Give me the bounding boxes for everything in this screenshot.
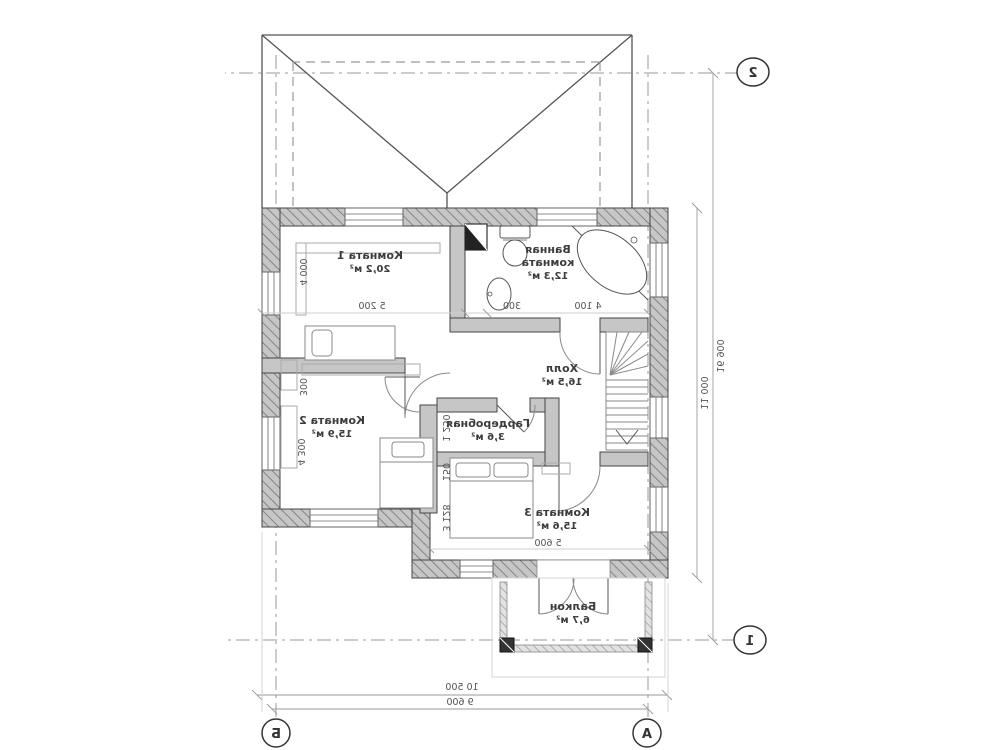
wall-hall-top-right — [450, 318, 560, 332]
room3-area: 15,6 м² — [537, 521, 578, 532]
dim-top-bath: 4 100 — [574, 301, 601, 312]
window-room3-side — [650, 487, 668, 532]
wall-wardrobe-top-right — [437, 398, 497, 412]
window-room2-side — [262, 417, 280, 470]
axis-label-1: 1 — [745, 634, 754, 649]
window-top-room1 — [345, 208, 403, 226]
room2-bed — [380, 438, 433, 508]
dim-left-room2: 4 300 — [295, 438, 306, 465]
floor-plan-drawing: Комната 1 20,2 м² Ванная комната 12,3 м²… — [0, 0, 1000, 750]
room1-label: Комната 1 — [337, 249, 403, 262]
wardrobe-area: 3,6 м² — [471, 432, 505, 443]
balcony-wall-bottom — [500, 645, 652, 652]
axis-label-a: А — [642, 727, 652, 742]
axis-label-b: Б — [271, 727, 281, 742]
floor-plan-sheet: Комната 1 20,2 м² Ванная комната 12,3 м²… — [0, 0, 1000, 750]
axis-label-2: 2 — [748, 66, 757, 81]
dim-mid-gap: 150 — [440, 463, 451, 481]
wall-wardrobe-left — [545, 398, 559, 466]
door-room2 — [385, 377, 420, 412]
dim-right-depth: 11 000 — [698, 376, 709, 409]
roof-outline — [262, 35, 632, 208]
bathroom-area: 12,3 м² — [528, 271, 569, 282]
grid-bubbles — [262, 58, 769, 747]
dim-room3-width: 5 600 — [534, 538, 561, 549]
hall-label: Холл — [546, 362, 578, 375]
dim-bottom-overall: 10 500 — [445, 682, 478, 693]
wall-room3-top-left — [600, 452, 648, 466]
window-bath-side — [650, 243, 668, 297]
bathroom-label-line2: комната — [522, 256, 575, 269]
mirrored-plan-group: Комната 1 20,2 м² Ванная комната 12,3 м²… — [225, 35, 769, 747]
dim-mid-wardrobe: 1 250 — [440, 414, 451, 441]
balcony-wall-right — [500, 582, 507, 645]
room2-area: 15,9 м² — [312, 429, 353, 440]
vent-shaft — [465, 224, 487, 250]
wall-wardrobe-top-left — [530, 398, 545, 412]
corner-bathtub — [565, 217, 658, 307]
dim-top-gap: 300 — [503, 301, 521, 312]
bathroom-label-line1: Ванная — [525, 243, 571, 256]
balcony-structure — [492, 578, 665, 677]
window-stair-side — [650, 397, 668, 438]
room1-area: 20,2 м² — [350, 264, 391, 275]
window-room2-bottom — [310, 509, 378, 527]
balcony-label: Балкон — [550, 600, 597, 613]
dim-top-room1: 5 200 — [358, 301, 385, 312]
wall-bath-room1 — [450, 226, 465, 332]
window-top-bath — [537, 208, 597, 226]
dim-left-room1: 4 000 — [297, 258, 308, 285]
balcony-canopy-outline — [492, 578, 665, 677]
dim-bottom-axes: 9 600 — [446, 697, 473, 708]
room1-bed — [305, 326, 395, 360]
stair-direction-arrow — [616, 430, 638, 444]
dim-mid-room3: 3 128 — [440, 504, 451, 531]
door-room3 — [559, 466, 600, 511]
room2-label: Комната 2 — [299, 414, 365, 427]
window-room3-bottom — [460, 560, 493, 578]
dim-left-gap: 300 — [297, 378, 308, 396]
window-room1-side — [262, 272, 280, 315]
balcony-area: 6,7 м² — [556, 615, 590, 626]
hall-area: 16,5 м² — [542, 377, 583, 388]
furniture — [281, 243, 570, 538]
wall-hall-top-left — [600, 318, 648, 332]
room2-wardrobe-side — [281, 406, 297, 468]
staircase — [606, 332, 648, 450]
room3-bed — [450, 458, 533, 538]
wardrobe-label: Гардеробная — [446, 417, 530, 430]
roof-eave-dashed — [293, 62, 600, 206]
dim-right-overall: 16 900 — [714, 339, 725, 372]
wall-top — [262, 208, 668, 226]
balcony-door-opening — [537, 560, 610, 578]
room3-label: Комната 3 — [524, 506, 590, 519]
balcony-wall-left — [645, 582, 652, 645]
